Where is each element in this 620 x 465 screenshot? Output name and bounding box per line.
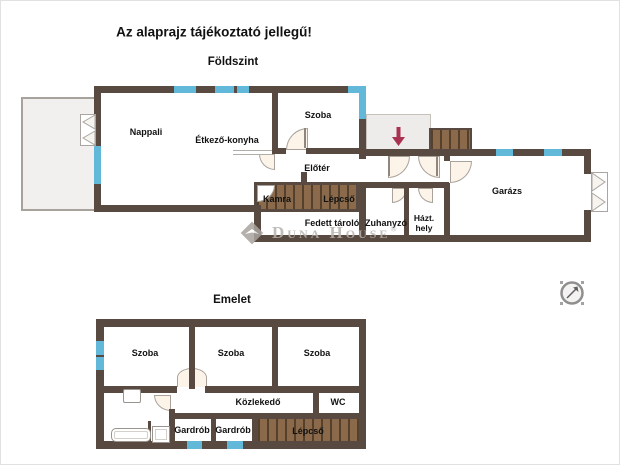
window-marker (174, 86, 196, 93)
wall-segment (272, 319, 278, 389)
wall-segment (96, 319, 104, 449)
room-label-lepcso-ground: Lépcső (323, 194, 355, 204)
room-label-wc: WC (331, 397, 346, 407)
room-label-kamra: Kamra (263, 194, 291, 204)
wall-segment (444, 183, 450, 242)
wall-segment (301, 172, 307, 184)
room-label-etkezo-konyha: Étkező-konyha (195, 135, 259, 145)
door-arc (259, 154, 275, 170)
window-marker (94, 146, 101, 184)
door-leaf (388, 156, 390, 176)
window-marker (96, 357, 104, 370)
disclaimer-title: Az alaprajz tájékoztató jellegű! (116, 25, 312, 40)
door-arc (450, 161, 472, 183)
wall-segment (444, 156, 450, 161)
room-label-eloter: Előtér (304, 163, 330, 173)
window-marker (359, 89, 366, 119)
watermark: Duna House® (239, 220, 399, 246)
wall-segment (189, 319, 195, 389)
window-marker (227, 441, 243, 449)
registered-mark: ® (390, 224, 399, 233)
room-label-kozlekedo: Közlekedő (235, 397, 280, 407)
french-door-icon (80, 114, 96, 146)
room-label-gardrob1: Gardrób (174, 425, 210, 435)
window-marker (496, 149, 513, 156)
door-arc (418, 188, 433, 203)
room-label-szoba2: Szoba (218, 348, 245, 358)
wall-segment (359, 319, 366, 449)
room-label-garazs: Garázs (492, 186, 522, 196)
sink-fixture (123, 389, 141, 403)
room-label-szoba-ground: Szoba (305, 110, 332, 120)
entrance-arrow-icon (391, 127, 406, 147)
room-label-nappali: Nappali (130, 127, 163, 137)
compass-icon (556, 277, 588, 309)
wall-segment (96, 319, 366, 327)
wall-segment (169, 413, 359, 419)
window-marker (187, 441, 202, 449)
wall-segment (272, 148, 286, 154)
room-label-hazt-line2: hely (415, 223, 432, 233)
counter-line (233, 154, 272, 155)
wall-segment (252, 419, 258, 441)
room-label-szoba1: Szoba (132, 348, 159, 358)
door-arc (388, 156, 410, 178)
wall-segment (205, 386, 366, 393)
watermark-brand: Duna House® (272, 223, 399, 243)
window-marker (544, 149, 562, 156)
wall-segment (306, 148, 366, 154)
watermark-brand-text: Duna House (272, 223, 390, 242)
floorplan-canvas: Az alaprajz tájékoztató jellegű! Földszi… (0, 0, 620, 465)
room-label-hazt-line1: Házt. (414, 213, 434, 223)
room-label-gardrob2: Gardrób (215, 425, 251, 435)
ground-floor-title: Földszint (208, 56, 258, 68)
bathtub-fixture (111, 428, 151, 442)
door-leaf (304, 128, 306, 148)
garage-door-icon (591, 172, 608, 212)
wall-segment (272, 86, 278, 154)
counter-line (233, 150, 272, 151)
shower-fixture (152, 426, 170, 443)
room-label-lepcso-upper: Lépcső (292, 426, 324, 436)
room-label-hazt-hely: Házt.hely (414, 214, 434, 234)
window-marker (215, 86, 234, 93)
upper-floor-title: Emelet (213, 294, 251, 306)
wall-segment (94, 205, 261, 212)
wall-segment (584, 149, 591, 174)
window-marker (237, 86, 249, 93)
door-leaf (436, 156, 438, 176)
dunahouse-logo-icon (239, 220, 265, 246)
wall-segment (584, 210, 591, 242)
window-marker (96, 341, 104, 355)
room-label-szoba3: Szoba (304, 348, 331, 358)
